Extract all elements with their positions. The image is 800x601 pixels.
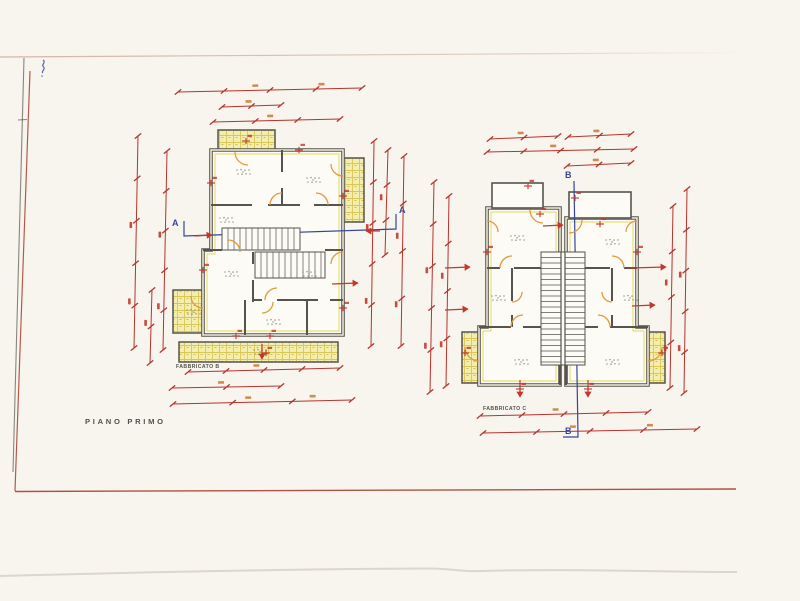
floor-title: PIANO PRIMO [85,417,166,426]
building-b-terrace [179,342,338,362]
border-tick [18,120,27,121]
section-marker-a-left: A [172,218,179,228]
scanned-drawing-page: A A FABBRICATO B B B FABBRICATO C PIANO … [0,0,800,601]
section-marker-b-top: B [565,170,572,180]
building-b-label: FABBRICATO B [176,364,220,370]
building-c-left-porch [492,183,543,208]
building-c-label: FABBRICATO C [483,406,527,412]
section-marker-a-right: A [399,205,406,215]
building-c-right-porch [569,192,631,218]
building-b-left-balcony [173,290,203,333]
architectural-floor-plan: A A FABBRICATO B B B FABBRICATO C PIANO … [0,0,800,601]
